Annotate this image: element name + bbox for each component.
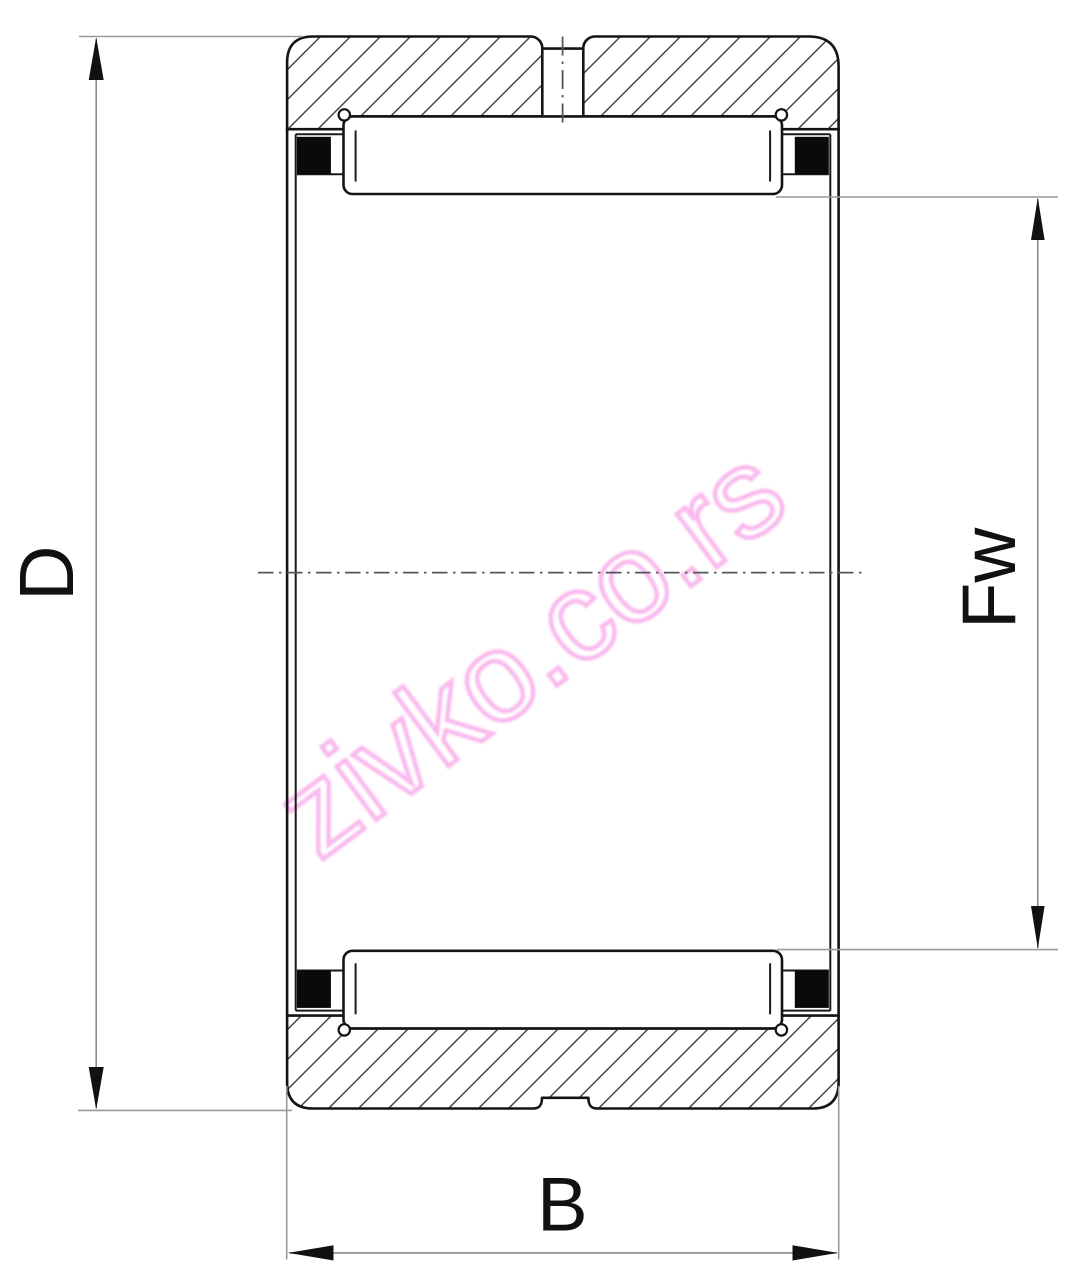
svg-text:zivko.co.rs: zivko.co.rs [252, 420, 809, 884]
svg-text:D: D [4, 545, 90, 601]
svg-text:B: B [537, 1163, 588, 1248]
svg-text:Fw: Fw [947, 527, 1032, 629]
